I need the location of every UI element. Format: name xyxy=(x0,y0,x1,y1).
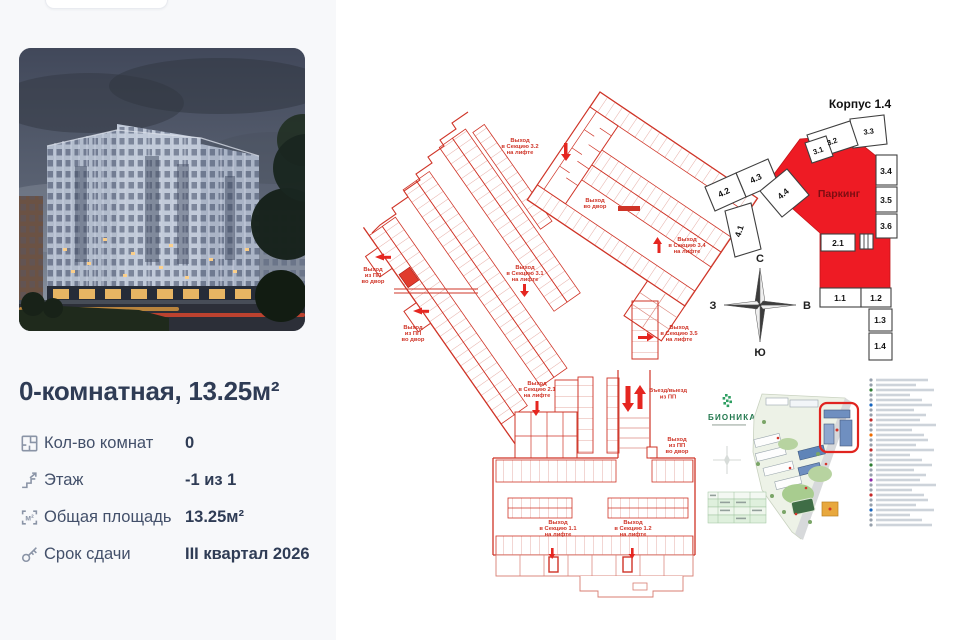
ramp xyxy=(618,370,657,458)
thick-wall xyxy=(618,206,640,211)
site-master-plan: БИОНИКА xyxy=(700,372,960,570)
plan-label-yard-exit-small: Выходво двор xyxy=(584,198,607,210)
section-label: 3.6 xyxy=(880,221,892,231)
section-label: 1.1 xyxy=(834,293,846,303)
floor-stairs-icon xyxy=(20,471,39,490)
scheme-title: Корпус 1.4 xyxy=(829,97,892,111)
spec-value: 13.25м² xyxy=(185,508,244,527)
building-scheme: Корпус 1.4 3.2 3.3 3.1 3.4 3.5 3.6 4.3 4… xyxy=(700,92,960,370)
plan-label-exit-1-1: Выходв Секцию 1.1на лифте xyxy=(539,520,577,538)
map-compass-icon xyxy=(713,446,741,474)
plan-label-yard-exit-3: Выходиз ППво двор xyxy=(666,437,689,455)
spec-row-area: м² Общая площадь 13.25м² xyxy=(20,507,320,531)
parking-label: Паркинг xyxy=(818,188,861,200)
spec-label: Срок сдачи xyxy=(44,545,131,564)
section-label: 1.2 xyxy=(870,293,882,303)
section-label: 1.3 xyxy=(874,315,886,325)
compass-east: В xyxy=(803,300,811,312)
developer-logo: БИОНИКА xyxy=(708,394,756,426)
plan-label-exit-3-2: Выходв Секцию 3.2на лифте xyxy=(501,138,538,156)
spec-row-rooms: Кол-во комнат 0 xyxy=(20,433,320,457)
section-label: 1.4 xyxy=(874,341,886,351)
compass-north: С xyxy=(756,253,764,265)
plan-label-exit-1-2: Выходв Секцию 1.2на лифте xyxy=(614,520,651,538)
svg-text:м²: м² xyxy=(25,513,34,522)
compass-south: Ю xyxy=(754,347,765,359)
ramp-up-arrow-icon xyxy=(634,385,646,409)
building-render-image xyxy=(19,48,305,331)
compass-west: З xyxy=(710,300,717,312)
plan-label-ramp: Въезд/выездиз ПП xyxy=(649,388,687,401)
section-label: 2.1 xyxy=(832,238,844,248)
spec-label: Этаж xyxy=(44,471,83,490)
ramp-down-arrow-icon xyxy=(622,386,634,412)
window-tab[interactable] xyxy=(45,0,168,9)
section-label: 3.3 xyxy=(863,126,875,136)
compass-rose-icon xyxy=(724,268,796,342)
parking-block-south xyxy=(493,458,695,597)
sitemap-legend xyxy=(869,378,936,526)
spec-row-deadline: Срок сдачи III квартал 2026 xyxy=(20,544,320,568)
sitemap-table xyxy=(708,492,766,523)
section-label: 3.5 xyxy=(880,195,892,205)
spec-value: III квартал 2026 xyxy=(185,545,310,564)
spec-label: Общая площадь xyxy=(44,508,171,527)
spec-label: Кол-во комнат xyxy=(44,434,153,453)
spec-value: -1 из 1 xyxy=(185,471,236,490)
developer-logo-text: БИОНИКА xyxy=(708,413,756,422)
rooms-icon xyxy=(20,434,39,453)
listing-panel: 0-комнатная, 13.25м² Кол-во комнат 0 Эта… xyxy=(0,0,336,640)
spec-value: 0 xyxy=(185,434,194,453)
spec-row-floor: Этаж -1 из 1 xyxy=(20,470,320,494)
plan-label-yard-exit-2: Выходиз ППво двор xyxy=(402,325,425,343)
plan-label-exit-2-1: Выходв Секцию 2.1на лифте xyxy=(518,381,556,399)
building-photo[interactable] xyxy=(19,48,305,331)
section-label: 3.4 xyxy=(880,166,892,176)
east-cells xyxy=(632,301,658,359)
listing-title: 0-комнатная, 13.25м² xyxy=(19,376,319,407)
area-icon: м² xyxy=(20,508,39,527)
key-icon xyxy=(20,545,39,564)
